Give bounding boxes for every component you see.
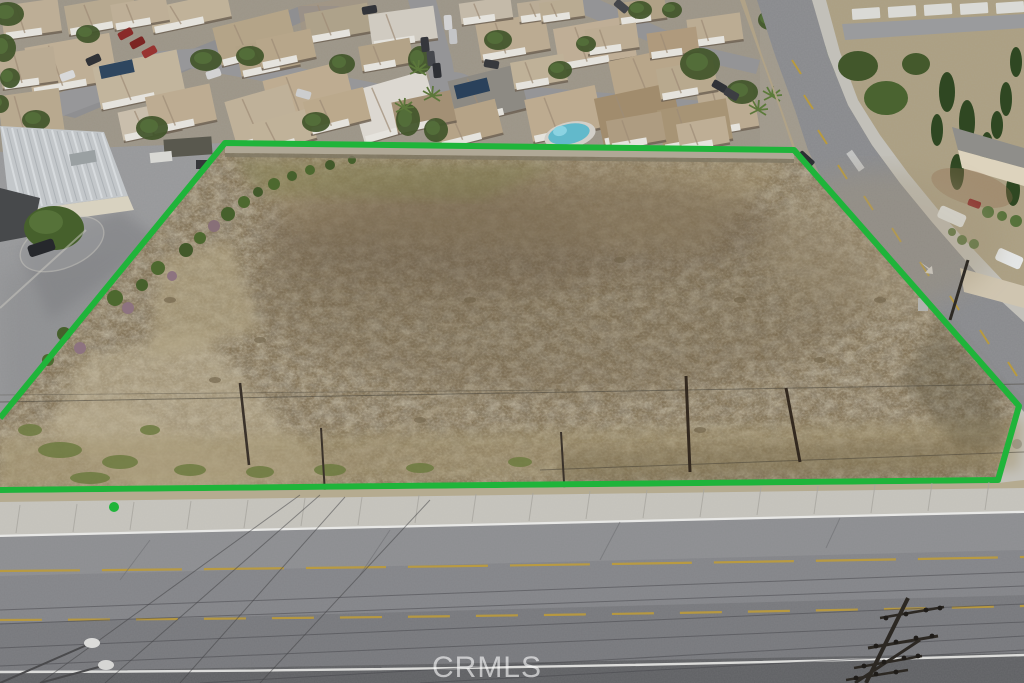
svg-text:CRMLS: CRMLS — [432, 651, 542, 683]
